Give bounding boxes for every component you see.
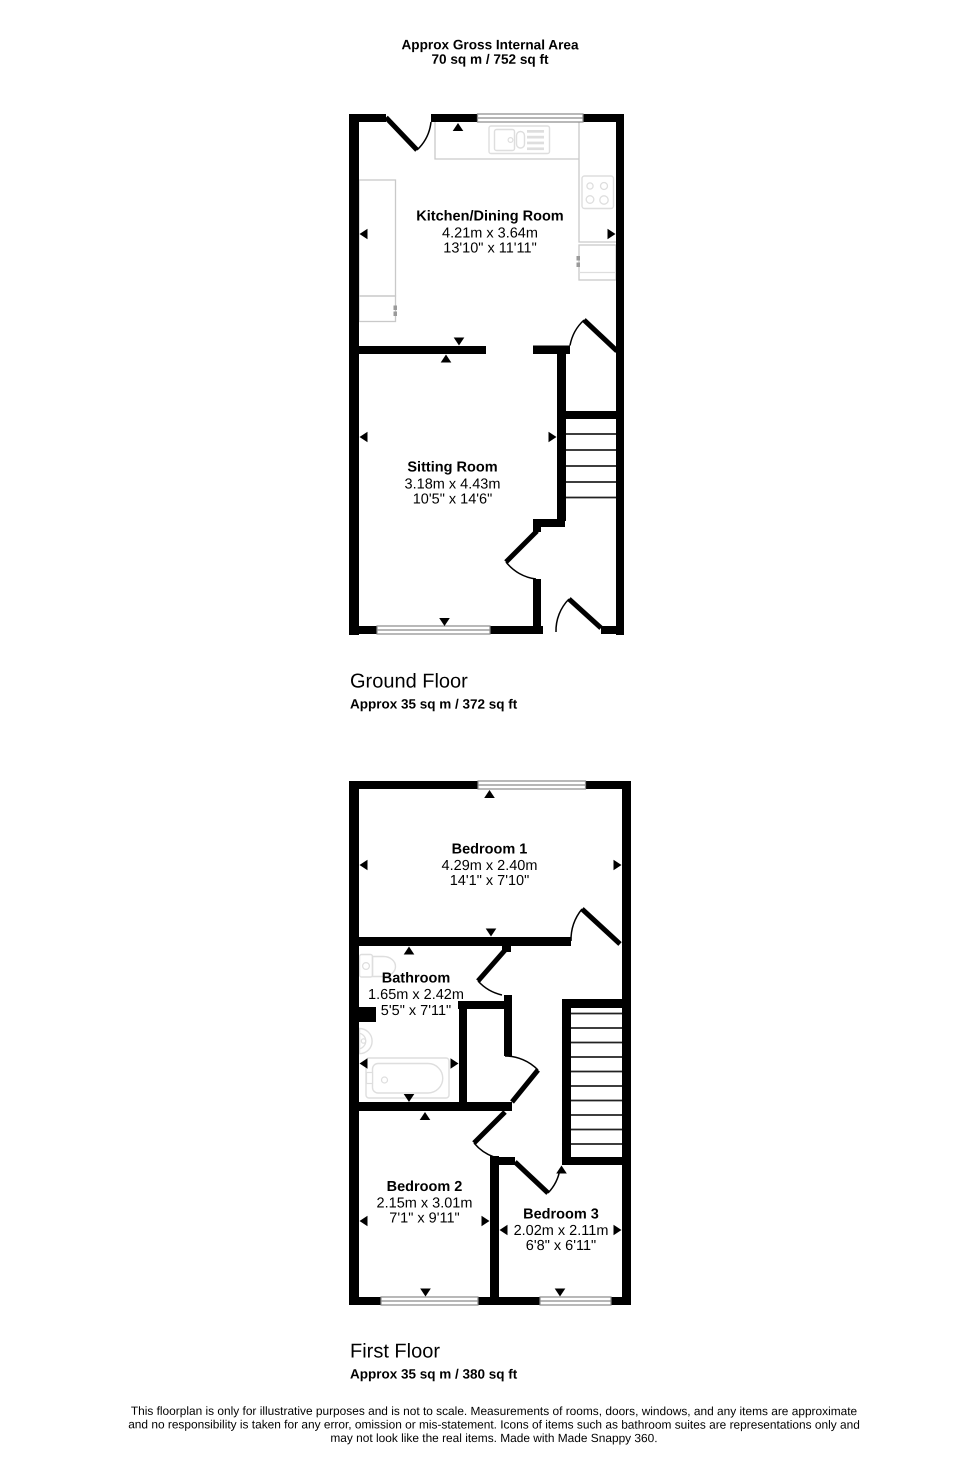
svg-text:Bathroom: Bathroom bbox=[382, 970, 450, 986]
svg-text:14'1" x 7'10": 14'1" x 7'10" bbox=[450, 873, 530, 889]
svg-text:First Floor: First Floor bbox=[350, 1341, 440, 1363]
svg-text:Sitting Room: Sitting Room bbox=[407, 459, 497, 475]
svg-text:4.29m x 2.40m: 4.29m x 2.40m bbox=[442, 858, 538, 874]
svg-text:3.18m x 4.43m: 3.18m x 4.43m bbox=[405, 476, 501, 492]
svg-text:2.02m x 2.11m: 2.02m x 2.11m bbox=[514, 1223, 609, 1239]
svg-text:10'5" x 14'6": 10'5" x 14'6" bbox=[413, 491, 493, 507]
svg-text:7'1" x 9'11": 7'1" x 9'11" bbox=[389, 1210, 459, 1226]
svg-text:Kitchen/Dining Room: Kitchen/Dining Room bbox=[416, 208, 563, 224]
svg-text:Bedroom 2: Bedroom 2 bbox=[387, 1179, 463, 1195]
svg-text:6'8" x 6'11": 6'8" x 6'11" bbox=[526, 1238, 596, 1254]
svg-text:Ground Floor: Ground Floor bbox=[350, 671, 468, 693]
svg-text:Bedroom 1: Bedroom 1 bbox=[452, 841, 528, 857]
svg-text:2.15m x 3.01m: 2.15m x 3.01m bbox=[377, 1195, 473, 1211]
svg-text:Approx 35 sq m / 380 sq ft: Approx 35 sq m / 380 sq ft bbox=[350, 1367, 518, 1382]
svg-text:13'10" x 11'11": 13'10" x 11'11" bbox=[443, 240, 537, 256]
svg-text:Approx 35 sq m / 372 sq ft: Approx 35 sq m / 372 sq ft bbox=[350, 697, 518, 712]
svg-text:70 sq m / 752 sq ft: 70 sq m / 752 sq ft bbox=[431, 52, 549, 67]
svg-text:and no responsibility is taken: and no responsibility is taken for any e… bbox=[128, 1417, 860, 1431]
svg-text:Bedroom 3: Bedroom 3 bbox=[523, 1206, 599, 1222]
svg-text:4.21m x 3.64m: 4.21m x 3.64m bbox=[442, 225, 538, 241]
svg-text:This floorplan is only for ill: This floorplan is only for illustrative … bbox=[131, 1404, 858, 1418]
svg-text:1.65m x 2.42m: 1.65m x 2.42m bbox=[368, 987, 464, 1003]
svg-text:5'5" x 7'11": 5'5" x 7'11" bbox=[381, 1003, 451, 1019]
svg-text:Approx Gross Internal Area: Approx Gross Internal Area bbox=[401, 37, 578, 52]
svg-text:may not look like the real ite: may not look like the real items. Made w… bbox=[330, 1431, 657, 1445]
